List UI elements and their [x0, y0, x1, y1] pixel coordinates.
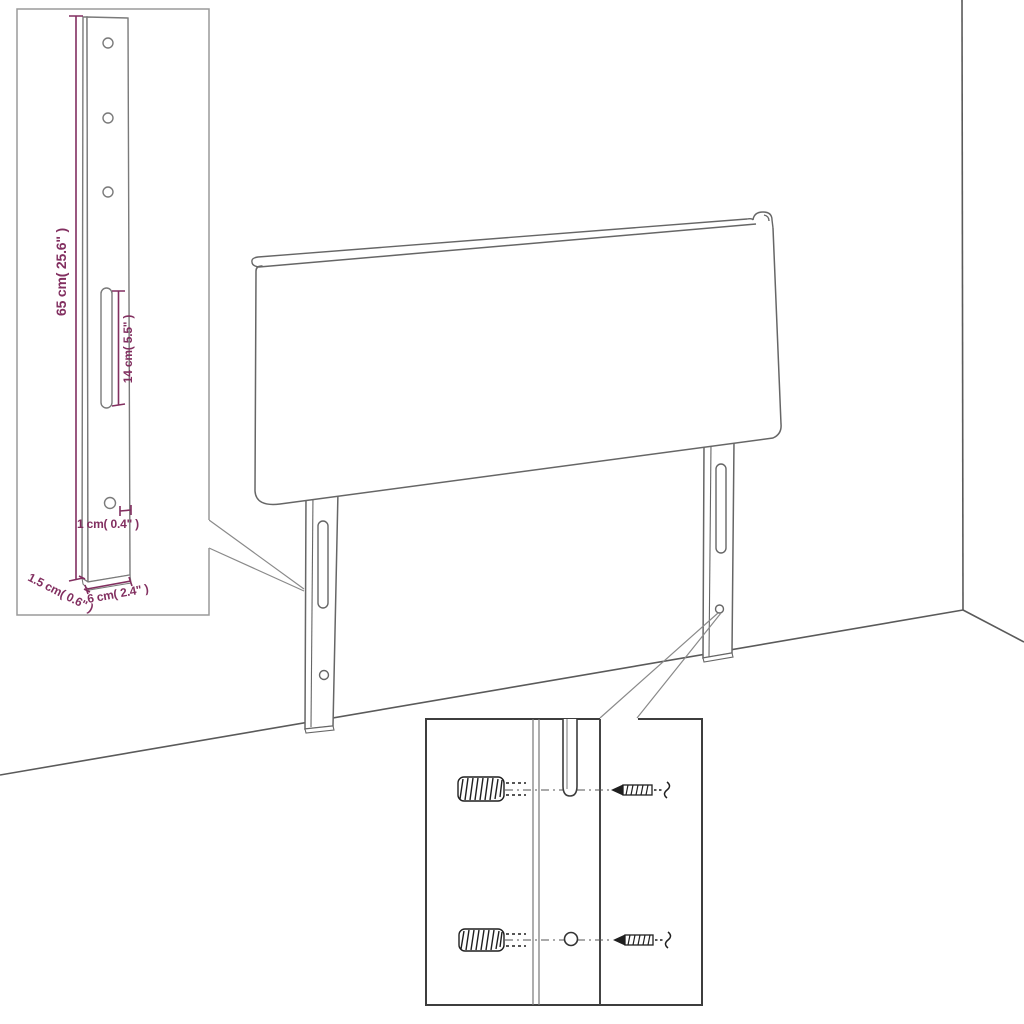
headboard-left-leg	[305, 491, 338, 733]
floor-line-right	[963, 610, 1024, 642]
inset-leg-slot	[101, 288, 112, 408]
right-leg-slot	[716, 464, 726, 553]
dimension-label-65cm: 65 cm( 25.6" )	[53, 228, 69, 316]
wall-corner-line	[962, 0, 963, 610]
dimension-label-14cm: 14 cm( 5.5" )	[121, 315, 135, 384]
detail-slot	[563, 719, 577, 796]
headboard-front-face	[255, 224, 781, 504]
headboard	[252, 212, 781, 504]
inset-leg-hole-1	[103, 38, 113, 48]
callout-left-leg	[209, 520, 304, 591]
inset-leg-hole-2	[103, 113, 113, 123]
inset-leg-hole-3	[103, 187, 113, 197]
right-leg-screw-hole	[716, 605, 724, 613]
left-leg-screw-hole	[320, 671, 329, 680]
leg-dimensions-inset: 65 cm( 25.6" ) 14 cm( 5.5" ) 1 cm( 0.4" …	[17, 9, 209, 615]
dimension-label-1cm: 1 cm( 0.4" )	[77, 517, 139, 531]
inset-leg-small-hole	[105, 498, 116, 509]
inset-leg-drawing	[82, 17, 131, 590]
hardware-detail-inset	[426, 719, 702, 1005]
assembly-diagram-page: 65 cm( 25.6" ) 14 cm( 5.5" ) 1 cm( 0.4" …	[0, 0, 1024, 1024]
callout-wedges	[209, 520, 721, 718]
left-leg-slot	[318, 521, 328, 608]
assembly-diagram: 65 cm( 25.6" ) 14 cm( 5.5" ) 1 cm( 0.4" …	[0, 0, 1024, 1024]
detail-hole	[565, 933, 578, 946]
